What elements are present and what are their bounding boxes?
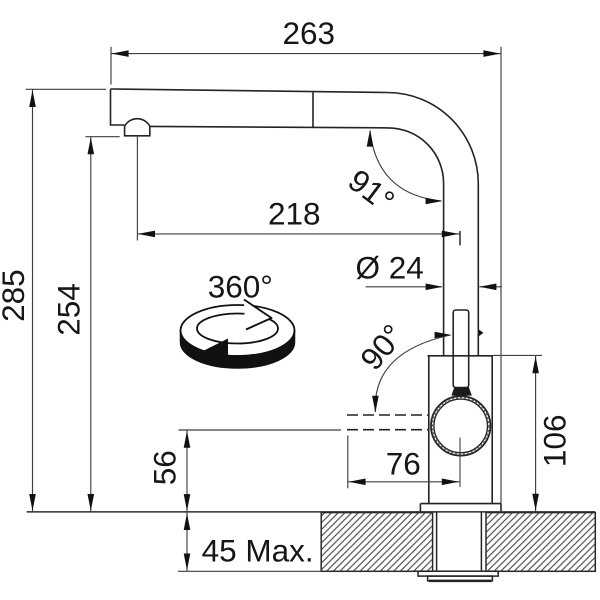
svg-text:91°: 91° [342,162,402,219]
svg-text:285: 285 [0,269,31,322]
svg-text:106: 106 [537,415,573,468]
svg-text:263: 263 [283,15,336,51]
svg-text:Ø 24: Ø 24 [355,249,423,285]
svg-text:254: 254 [51,283,87,336]
svg-text:76: 76 [386,446,421,482]
svg-text:360°: 360° [208,268,273,304]
svg-text:56: 56 [147,450,183,485]
svg-text:90°: 90° [353,317,411,377]
svg-text:45 Max.: 45 Max. [202,532,314,568]
svg-text:218: 218 [268,195,321,231]
